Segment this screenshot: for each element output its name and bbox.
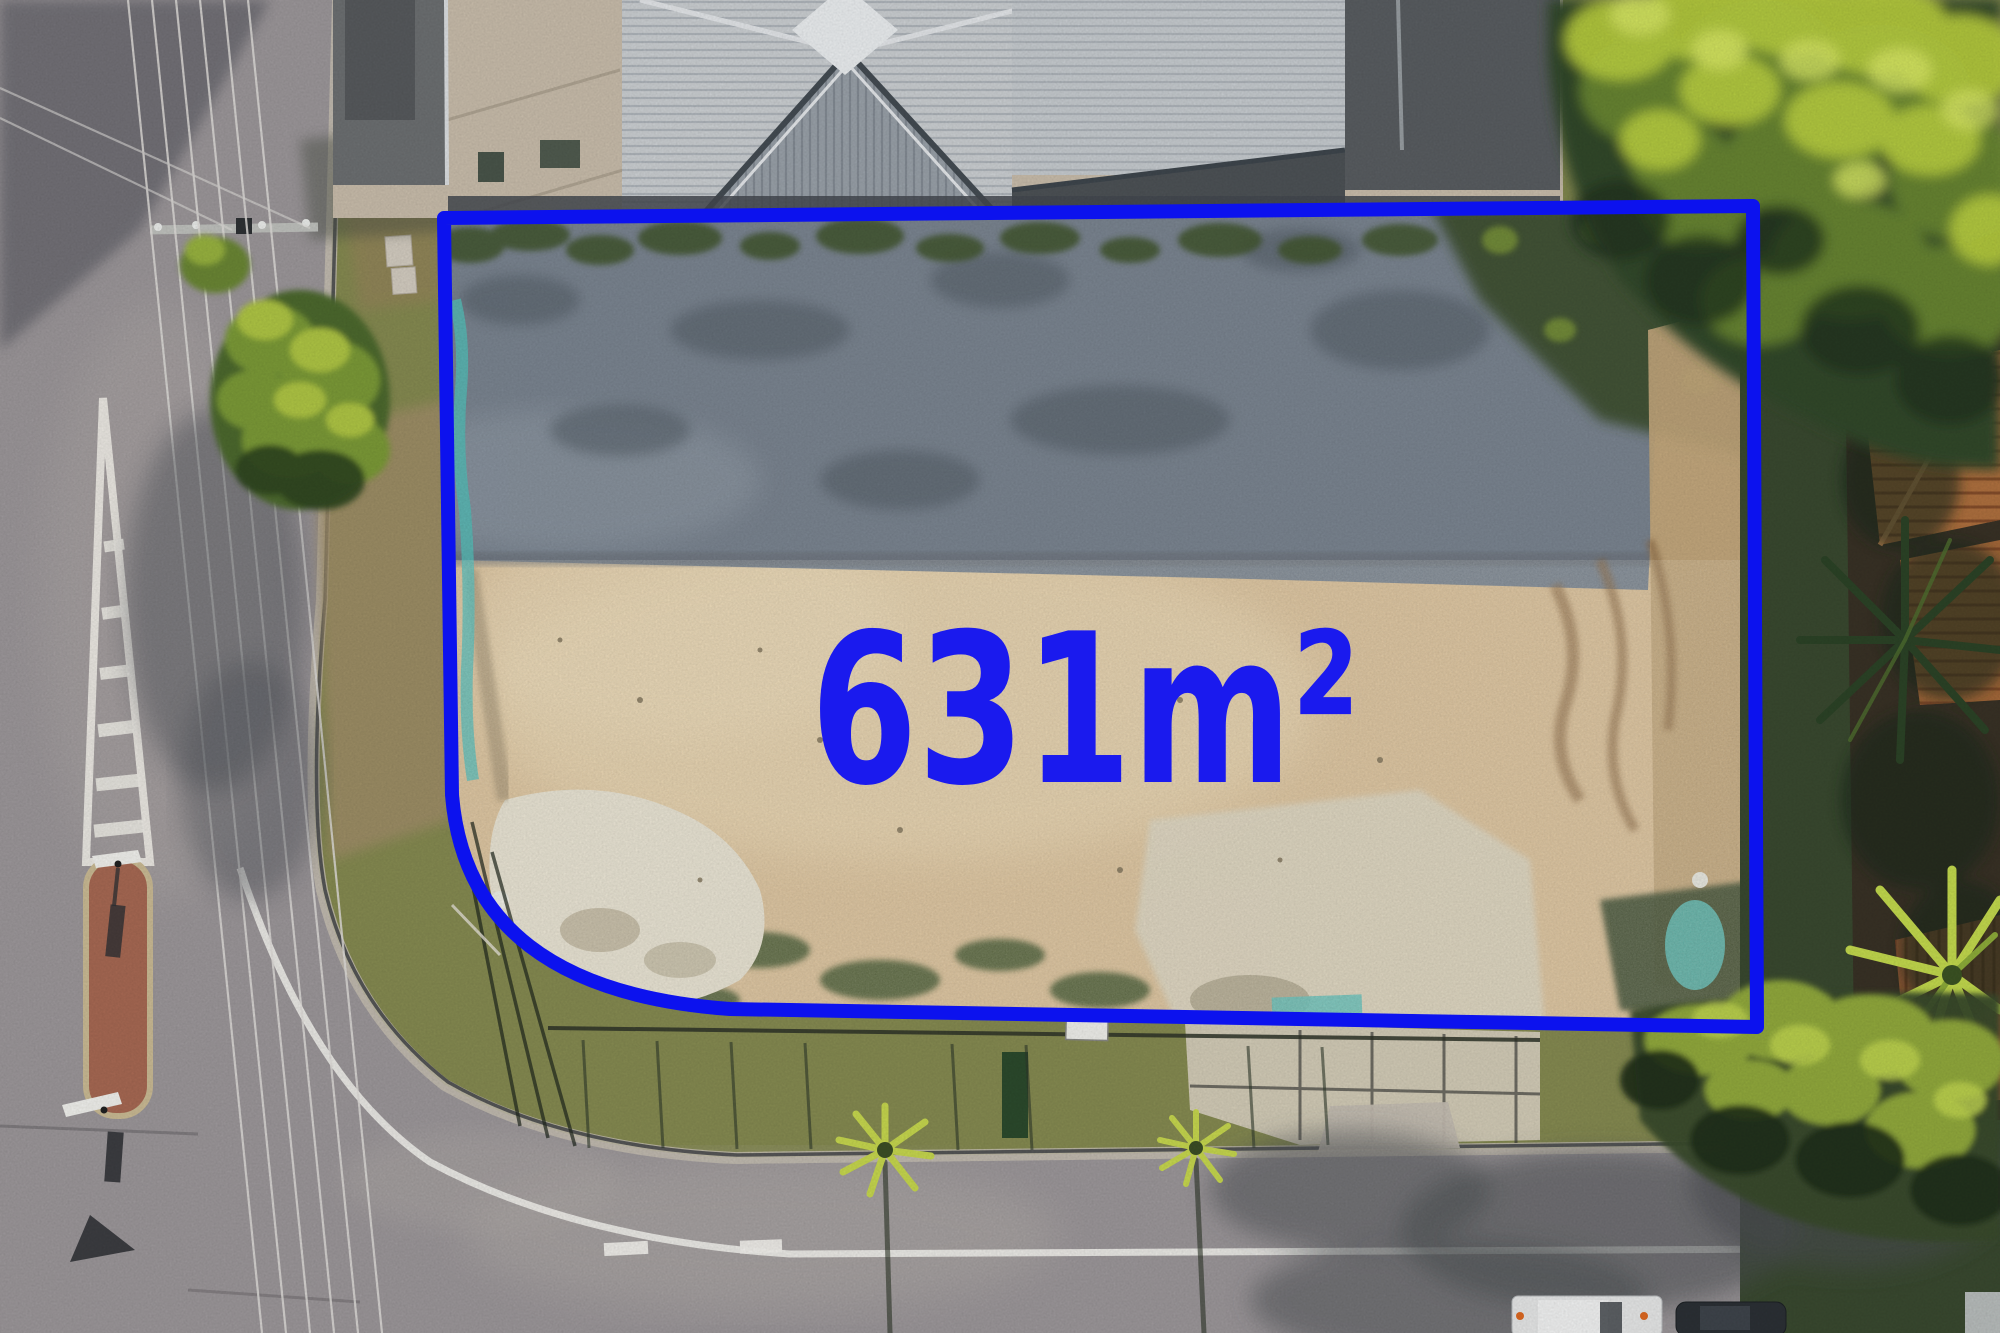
- aerial-photo-listing: 631m²: [0, 0, 2000, 1333]
- area-label: 631m²: [810, 590, 1359, 832]
- aerial-photo: 631m²: [0, 0, 2000, 1333]
